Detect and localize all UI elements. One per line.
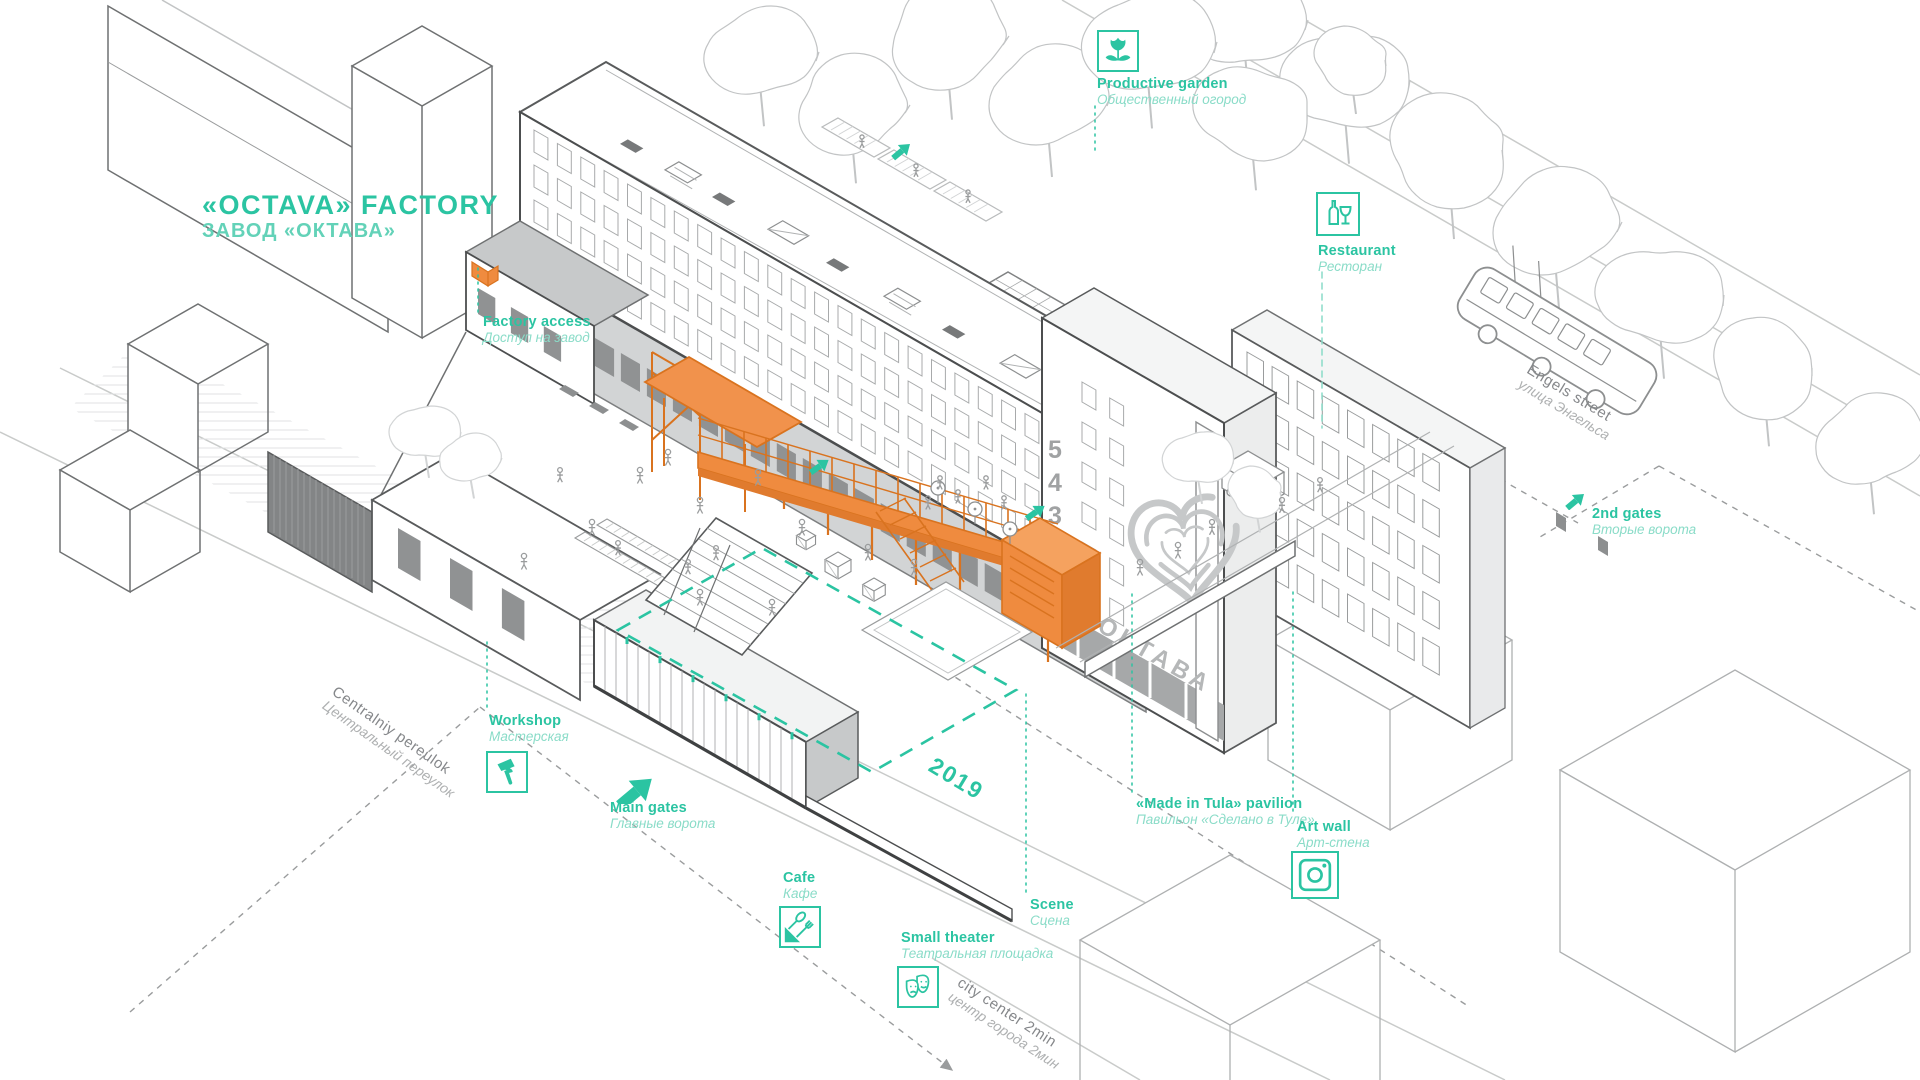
- label-second-gates: 2nd gates Вторые ворота: [1592, 506, 1696, 537]
- title-en: «OCTAVA» FACTORY: [202, 190, 499, 220]
- label-cafe: Cafe Кафе: [783, 870, 817, 901]
- label-productive-garden: Productive garden Общественный огород: [1097, 76, 1246, 107]
- floor-number-5: 5: [1048, 436, 1062, 464]
- arrow-icon: [1558, 480, 1592, 510]
- label-small-theater: Small theater Театральная площадка: [901, 930, 1053, 961]
- label-restaurant: Restaurant Ресторан: [1318, 243, 1396, 274]
- label-scene: Scene Сцена: [1030, 897, 1074, 928]
- label-made-in-tula: «Made in Tula» pavilion Павильон «Сделан…: [1136, 796, 1315, 827]
- floor-number-4: 4: [1048, 469, 1062, 497]
- title-ru: ЗАВОД «ОКТАВА»: [202, 220, 499, 242]
- arrow-icon: [604, 756, 666, 804]
- axonometric-site-diagram: 5 4 3 2 1 ОКТАВА: [0, 0, 1920, 1080]
- camera-icon: [1291, 851, 1339, 899]
- hammer-icon: [486, 751, 528, 793]
- diagram-title: «OCTAVA» FACTORY ЗАВОД «ОКТАВА»: [202, 190, 499, 243]
- cutlery-icon: [779, 906, 821, 948]
- wine-icon: [1316, 192, 1360, 236]
- label-main-gates: Main gates Главные ворота: [610, 800, 715, 831]
- label-workshop: Workshop Мастерская: [489, 713, 569, 744]
- site-drawing: 5 4 3 2 1 ОКТАВА: [0, 0, 1920, 1080]
- label-art-wall: Art wall Арт-стена: [1297, 819, 1370, 850]
- flower-icon: [1097, 30, 1139, 72]
- theater-masks-icon: [897, 966, 939, 1008]
- label-factory-access: Factory access Доступ на завод: [483, 314, 591, 345]
